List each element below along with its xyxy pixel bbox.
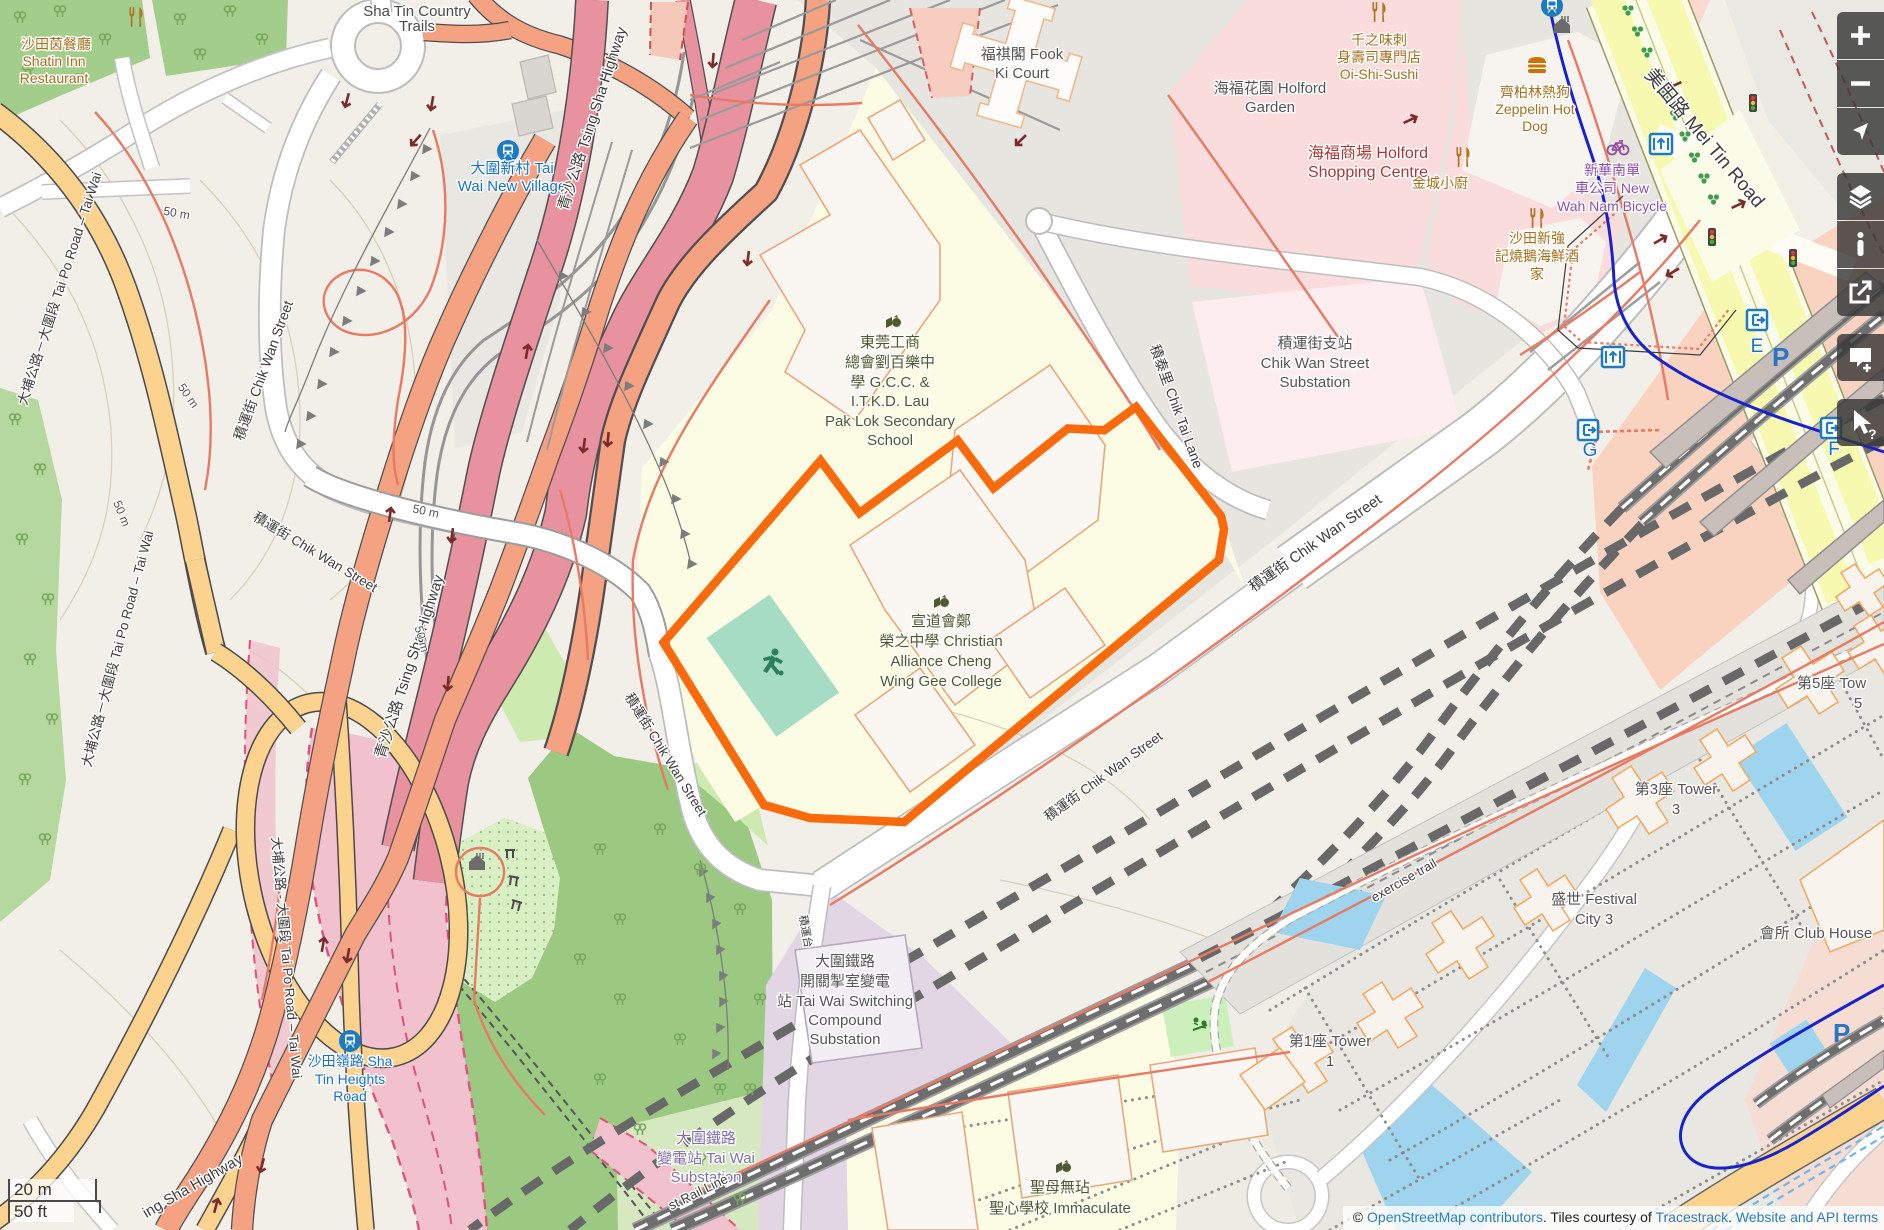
svg-text:沙田嶺路 Sha: 沙田嶺路 Sha <box>308 1053 393 1069</box>
svg-text:大圍鐵路: 大圍鐵路 <box>815 952 875 970</box>
svg-text:5: 5 <box>1854 695 1862 712</box>
svg-text:學 G.C.C. &: 學 G.C.C. & <box>850 373 929 391</box>
svg-text:第5座 Tow: 第5座 Tow <box>1797 674 1866 692</box>
svg-text:Oi-Shi-Sushi: Oi-Shi-Sushi <box>1340 66 1419 82</box>
svg-text:大圍新村 Tai: 大圍新村 Tai <box>470 160 553 177</box>
svg-text:Dog: Dog <box>1522 118 1548 134</box>
svg-text:榮之中學 Christian: 榮之中學 Christian <box>879 632 1002 650</box>
svg-text:Substation: Substation <box>1280 374 1351 391</box>
svg-text:車公司 New: 車公司 New <box>1575 180 1650 196</box>
svg-text:City 3: City 3 <box>1575 911 1613 928</box>
svg-text:海福花園 Holford: 海福花園 Holford <box>1214 80 1327 97</box>
svg-text:E: E <box>1751 336 1764 357</box>
svg-text:P: P <box>1772 342 1789 372</box>
svg-text:海福商場 Holford: 海福商場 Holford <box>1308 144 1428 162</box>
svg-text:福祺閣 Fook: 福祺閣 Fook <box>981 46 1064 63</box>
svg-text:P: P <box>1833 1018 1850 1048</box>
svg-text:大圍鐵路: 大圍鐵路 <box>676 1129 736 1147</box>
svg-text:1: 1 <box>1326 1053 1334 1070</box>
svg-text:I.T.K.D. Lau: I.T.K.D. Lau <box>851 393 929 410</box>
svg-text:Ki Court: Ki Court <box>995 65 1050 82</box>
svg-text:家: 家 <box>1530 266 1544 282</box>
svg-text:齊柏林熱狗: 齊柏林熱狗 <box>1500 84 1570 100</box>
svg-text:記燒鵝海鮮酒: 記燒鵝海鮮酒 <box>1495 248 1579 264</box>
svg-text:Trails: Trails <box>399 18 435 35</box>
svg-text:?: ? <box>1868 426 1877 442</box>
svg-text:School: School <box>867 432 913 449</box>
svg-text:沙田新強: 沙田新強 <box>1509 230 1565 246</box>
svg-text:G: G <box>1583 440 1598 461</box>
svg-text:Tin Heights: Tin Heights <box>315 1071 385 1087</box>
svg-text:會所 Club House: 會所 Club House <box>1760 925 1873 942</box>
svg-text:Shatin Inn: Shatin Inn <box>22 53 85 69</box>
svg-text:Shopping Centre: Shopping Centre <box>1308 164 1428 181</box>
svg-text:聖母無玷: 聖母無玷 <box>1030 1179 1090 1196</box>
svg-text:Restaurant: Restaurant <box>20 70 89 86</box>
svg-text:Compound: Compound <box>808 1012 881 1029</box>
svg-text:Wing Gee College: Wing Gee College <box>880 673 1002 690</box>
svg-text:Zeppelin Hot: Zeppelin Hot <box>1495 101 1574 117</box>
svg-text:Road: Road <box>333 1088 366 1104</box>
svg-text:千之味刺: 千之味刺 <box>1351 32 1407 48</box>
svg-text:第3座 Tower: 第3座 Tower <box>1635 780 1718 798</box>
svg-text:變電站 Tai Wai: 變電站 Tai Wai <box>657 1150 755 1167</box>
svg-text:沙田茵餐廳: 沙田茵餐廳 <box>21 36 91 52</box>
svg-text:宣道會鄭: 宣道會鄭 <box>911 613 971 630</box>
svg-text:開關掣室變電: 開關掣室變電 <box>800 973 890 990</box>
svg-text:身壽司專門店: 身壽司專門店 <box>1337 49 1421 65</box>
svg-text:Chik Wan Street: Chik Wan Street <box>1261 355 1370 372</box>
svg-text:第1座 Tower: 第1座 Tower <box>1289 1032 1372 1050</box>
svg-text:Garden: Garden <box>1245 99 1295 116</box>
svg-text:Substation: Substation <box>810 1031 881 1048</box>
svg-text:Pak Lok Secondary: Pak Lok Secondary <box>825 413 956 430</box>
svg-text:站 Tai Wai Switching: 站 Tai Wai Switching <box>777 993 913 1010</box>
svg-text:總會劉百樂中: 總會劉百樂中 <box>845 353 935 371</box>
svg-text:聖心學校 Immaculate: 聖心學校 Immaculate <box>989 1199 1131 1217</box>
svg-text:金城小廚: 金城小廚 <box>1412 175 1468 191</box>
svg-text:盛世 Festival: 盛世 Festival <box>1551 891 1637 908</box>
svg-text:3: 3 <box>1672 801 1680 818</box>
svg-text:東莞工商: 東莞工商 <box>860 334 920 351</box>
svg-text:積運街支站: 積運街支站 <box>1277 335 1352 352</box>
svg-text:Alliance Cheng: Alliance Cheng <box>891 653 992 670</box>
svg-text:新華南單: 新華南單 <box>1584 162 1640 178</box>
svg-text:Wah Nam Bicycle: Wah Nam Bicycle <box>1557 198 1667 214</box>
svg-text:Wai New Village: Wai New Village <box>458 178 566 195</box>
